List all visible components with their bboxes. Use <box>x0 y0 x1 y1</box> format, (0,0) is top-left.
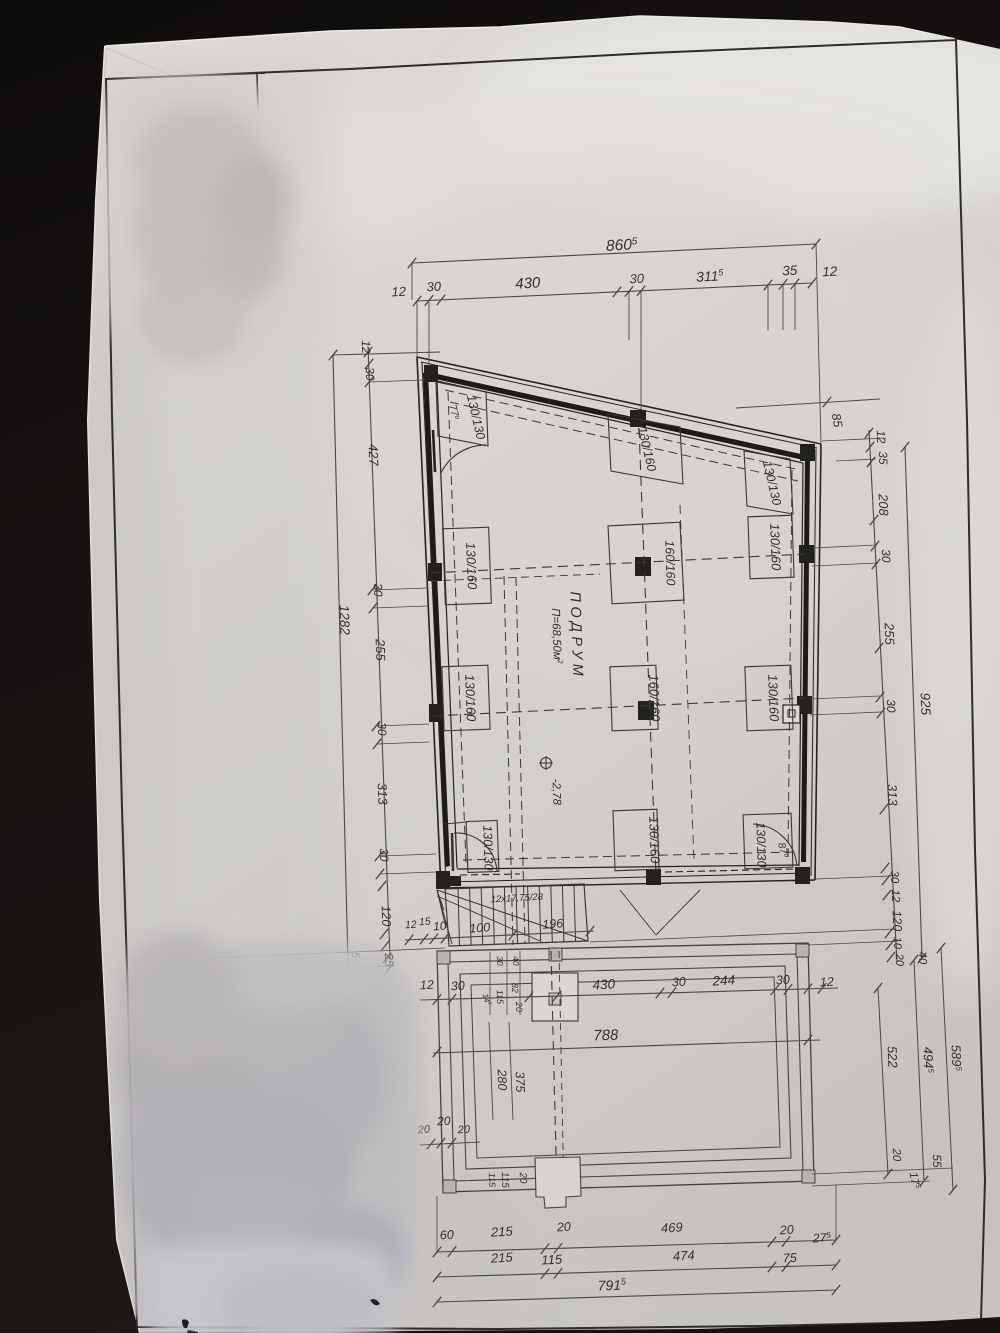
svg-text:130/160: 130/160 <box>767 523 784 571</box>
svg-text:120: 120 <box>890 910 905 931</box>
svg-text:115: 115 <box>487 1173 498 1189</box>
svg-text:130/160: 130/160 <box>462 674 479 722</box>
svg-text:75: 75 <box>782 1251 797 1266</box>
svg-text:30: 30 <box>879 549 893 563</box>
svg-text:280: 280 <box>495 1068 510 1090</box>
svg-text:40: 40 <box>916 951 928 965</box>
svg-text:12: 12 <box>419 978 434 993</box>
svg-text:160/160: 160/160 <box>662 540 678 586</box>
svg-text:10: 10 <box>891 937 903 951</box>
svg-text:35: 35 <box>876 451 890 465</box>
svg-text:20: 20 <box>778 1223 794 1238</box>
svg-text:12: 12 <box>822 264 838 280</box>
svg-text:20: 20 <box>514 1001 524 1012</box>
svg-text:20: 20 <box>890 1147 902 1162</box>
svg-text:115: 115 <box>541 1251 563 1267</box>
svg-text:ПОДРУМ: ПОДРУМ <box>566 591 585 680</box>
svg-text:30: 30 <box>377 848 391 862</box>
svg-text:313: 313 <box>885 784 901 807</box>
svg-text:12: 12 <box>391 284 407 300</box>
svg-text:115: 115 <box>495 990 506 1006</box>
svg-text:20: 20 <box>517 1171 528 1184</box>
svg-text:12: 12 <box>405 919 418 932</box>
svg-text:215: 215 <box>490 1223 514 1239</box>
svg-text:474: 474 <box>673 1247 695 1263</box>
svg-text:469: 469 <box>661 1219 683 1235</box>
svg-text:30: 30 <box>371 583 385 597</box>
svg-text:427: 427 <box>366 444 382 467</box>
svg-text:130/160: 130/160 <box>463 542 480 590</box>
svg-text:244: 244 <box>711 972 735 988</box>
svg-text:255: 255 <box>882 622 898 646</box>
svg-text:82: 82 <box>510 983 520 993</box>
svg-text:30: 30 <box>629 271 645 287</box>
svg-text:30: 30 <box>888 870 900 884</box>
svg-text:130/130: 130/130 <box>753 822 769 868</box>
svg-text:20: 20 <box>436 1114 451 1129</box>
svg-text:30: 30 <box>671 975 686 990</box>
svg-text:115: 115 <box>499 1172 511 1189</box>
svg-text:20: 20 <box>555 1220 571 1235</box>
svg-text:12: 12 <box>874 430 888 444</box>
svg-text:120: 120 <box>379 905 394 926</box>
svg-text:55: 55 <box>930 1154 944 1168</box>
svg-text:30: 30 <box>375 722 389 736</box>
svg-text:-2,78: -2,78 <box>550 779 563 806</box>
svg-text:10: 10 <box>433 919 448 934</box>
svg-text:208: 208 <box>876 493 892 517</box>
svg-text:20: 20 <box>456 1124 471 1137</box>
svg-text:522: 522 <box>885 1046 901 1069</box>
svg-text:925: 925 <box>918 692 934 716</box>
svg-text:П=68,50м2: П=68,50м2 <box>549 608 563 664</box>
svg-text:1282: 1282 <box>336 605 352 636</box>
svg-text:215: 215 <box>490 1249 514 1265</box>
svg-text:430: 430 <box>592 976 616 992</box>
svg-text:196: 196 <box>542 916 564 931</box>
svg-text:30: 30 <box>450 979 465 994</box>
svg-text:30: 30 <box>884 699 898 713</box>
svg-text:60: 60 <box>439 1228 454 1243</box>
svg-text:15: 15 <box>419 916 432 929</box>
svg-text:20: 20 <box>893 953 905 968</box>
svg-text:30: 30 <box>775 973 790 988</box>
svg-text:35: 35 <box>782 263 798 279</box>
svg-text:313: 313 <box>375 783 391 806</box>
svg-text:100: 100 <box>469 920 491 935</box>
svg-text:30: 30 <box>495 956 505 966</box>
svg-text:160/160: 160/160 <box>646 674 663 722</box>
svg-text:130/160: 130/160 <box>765 674 782 722</box>
svg-text:12: 12 <box>359 340 373 354</box>
svg-text:85: 85 <box>829 412 845 428</box>
svg-text:30: 30 <box>363 367 377 381</box>
svg-text:12: 12 <box>889 889 901 903</box>
svg-text:375: 375 <box>513 1071 528 1092</box>
svg-text:130/160: 130/160 <box>646 816 663 864</box>
svg-text:255: 255 <box>373 638 389 662</box>
svg-text:430: 430 <box>515 274 542 292</box>
svg-text:30: 30 <box>426 279 442 295</box>
svg-text:788: 788 <box>593 1027 619 1045</box>
svg-text:12: 12 <box>819 975 834 990</box>
